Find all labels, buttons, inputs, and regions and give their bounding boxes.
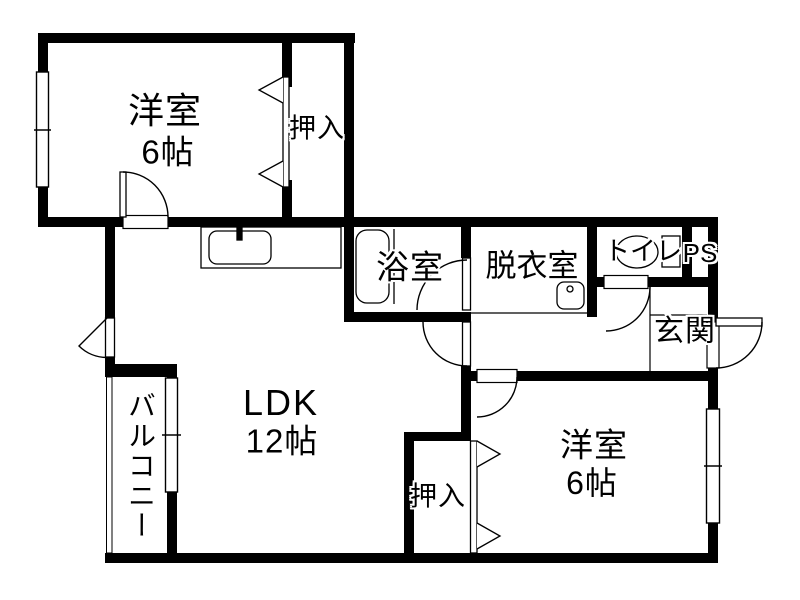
- wall: [105, 227, 115, 318]
- room-label-closet2: 押入: [410, 484, 466, 511]
- wall: [105, 364, 177, 377]
- room-label-ldk: LDK: [243, 385, 319, 421]
- wall: [461, 217, 471, 258]
- room-label-bedroom2: 洋室: [560, 429, 628, 462]
- room-label-ps: PS: [683, 240, 718, 266]
- folding-door-track-closet2: [471, 441, 478, 553]
- wall: [105, 553, 718, 563]
- room-label-balcony: バルコニー: [126, 391, 154, 541]
- room-size-bedroom2: 6帖: [566, 467, 618, 499]
- room-size-ldk: 12帖: [246, 425, 319, 458]
- balcony-railing: [107, 377, 113, 553]
- door-leaf-bath: [463, 258, 471, 310]
- door-leaf-ldk-side: [106, 318, 115, 357]
- room-size-bedroom1: 6帖: [141, 136, 194, 169]
- wall: [344, 312, 471, 322]
- room-label-toilet: トイレ: [604, 238, 682, 264]
- door-opening-bedroom1: [123, 216, 168, 229]
- door-leaf-entrance: [716, 318, 762, 326]
- room-label-washroom: 脱衣室: [486, 251, 579, 282]
- floor-plan-drawing: [0, 0, 800, 600]
- door-opening-bedroom2: [477, 370, 517, 383]
- door-leaf-bedroom1: [120, 172, 126, 217]
- wall: [587, 217, 597, 317]
- door-leaf-ldk-hall: [463, 322, 471, 366]
- kitchen-faucet: [237, 227, 242, 240]
- room-label-bedroom1: 洋室: [128, 93, 202, 129]
- floor-plan: 洋室 6帖 押入 浴室 脱衣室 トイレ PS 玄関 LDK 12帖 バルコニー …: [0, 0, 800, 600]
- wall: [344, 33, 354, 322]
- room-label-closet1: 押入: [289, 116, 345, 143]
- room-label-bath: 浴室: [376, 251, 444, 284]
- wall: [38, 33, 355, 43]
- room-label-entrance: 玄関: [654, 317, 716, 347]
- background: [0, 0, 800, 600]
- washbasin-faucet: [567, 286, 573, 292]
- door-opening-toilet: [604, 276, 648, 289]
- wall: [404, 432, 471, 441]
